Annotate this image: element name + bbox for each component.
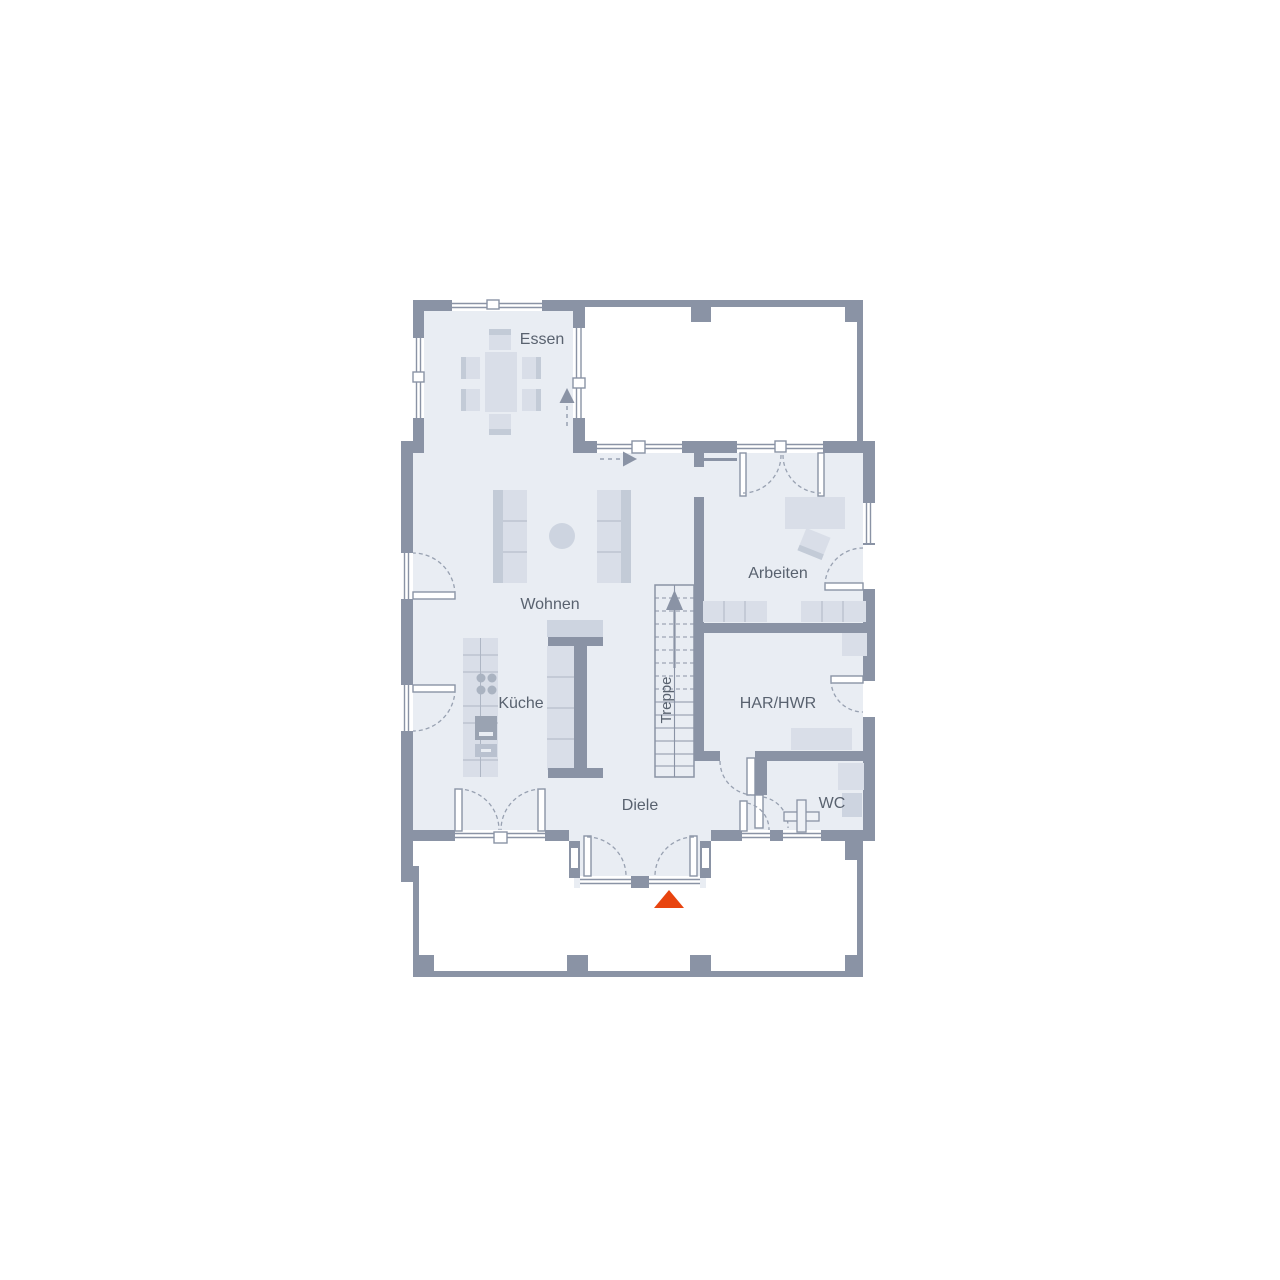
door-handle-mark — [632, 441, 645, 453]
counter-foot — [548, 768, 603, 778]
wall-wc-left — [755, 751, 767, 795]
har-cabinet — [842, 633, 867, 656]
door-leaf — [831, 676, 863, 683]
shower — [838, 763, 864, 790]
vestibule-sidelight — [702, 848, 709, 868]
window-essen-left — [413, 338, 424, 418]
room-label-wohnen: Wohnen — [520, 596, 579, 613]
window-essen-top — [452, 300, 542, 311]
door-leaf — [740, 801, 747, 831]
door-leaf — [747, 758, 755, 795]
oven-handle — [479, 732, 493, 736]
oven — [475, 716, 497, 740]
door-terrace-slider — [597, 441, 682, 453]
terrace-pillar-4 — [845, 955, 863, 977]
window-arbeiten-right — [863, 503, 875, 543]
counter-wall — [574, 646, 587, 770]
terrace-north-mid-pillar — [691, 300, 711, 322]
floor-plan-canvas: Essen Wohnen Küche Arbeiten HAR/HWR Diel… — [0, 0, 1280, 1280]
room-label-har-hwr: HAR/HWR — [740, 695, 816, 712]
wall-left-lower-stub — [401, 841, 413, 882]
room-label-diele: Diele — [622, 797, 659, 814]
coffee-table — [549, 523, 575, 549]
counter-edge — [548, 637, 603, 646]
chair-back — [489, 429, 511, 435]
wall-har-bottom — [755, 751, 866, 761]
drawer-handle — [481, 749, 491, 752]
entrance-marker-icon — [654, 890, 684, 908]
entrance-center-post — [631, 876, 649, 888]
window-tick — [413, 372, 424, 382]
terrace-pillar-1 — [413, 955, 434, 977]
door-leaf — [413, 592, 455, 599]
room-label-wc: WC — [819, 795, 846, 812]
door-handle-mark — [775, 441, 786, 452]
sideboard-left — [703, 601, 767, 622]
chair-back — [461, 389, 466, 411]
room-label-arbeiten: Arbeiten — [748, 565, 808, 582]
har-shelf — [791, 728, 852, 750]
chair-back — [536, 389, 541, 411]
door-leaf — [690, 836, 697, 876]
terrace-pillar-3 — [690, 955, 711, 977]
desk — [785, 497, 845, 529]
terrace-north-top-wall — [585, 300, 863, 307]
window-essen-right — [573, 328, 585, 418]
door-leaf — [455, 789, 462, 831]
terrace-south-bottom-wall — [413, 971, 863, 977]
wall-main-left — [401, 441, 413, 841]
floor-plan: Essen Wohnen Küche Arbeiten HAR/HWR Diel… — [0, 0, 1280, 1280]
room-label-essen: Essen — [520, 331, 564, 348]
terrace-north — [585, 300, 863, 441]
chair-back — [489, 329, 511, 335]
counter-top — [547, 620, 603, 637]
door-leaf — [818, 453, 824, 496]
room-label-kueche: Küche — [498, 695, 543, 712]
sideboard-right — [801, 601, 866, 622]
window-tick — [573, 378, 585, 388]
vestibule-sidelight — [571, 848, 578, 868]
door-leaf — [740, 453, 746, 496]
room-label-treppe: Treppe — [658, 677, 675, 724]
terrace-north-corner-pillar — [845, 300, 863, 322]
wall-arbeiten-har — [694, 623, 866, 633]
kitchen-island — [463, 638, 498, 777]
terrace-pillar-2 — [567, 955, 588, 977]
door-leaf — [413, 685, 455, 692]
door-leaf — [538, 789, 545, 831]
chair-back — [461, 357, 466, 379]
wall-har-bottom-stub — [694, 751, 720, 761]
chair-back — [536, 357, 541, 379]
door-leaf — [584, 836, 591, 876]
wall-sidelight-line — [704, 458, 737, 461]
terrace-pillar-5 — [845, 838, 863, 860]
wall-arbeiten-left-stub — [694, 441, 704, 467]
window-tick — [487, 300, 499, 309]
sofa-back — [493, 490, 503, 583]
sofa-back — [621, 490, 631, 583]
dining-table — [485, 352, 517, 412]
door-leaf — [825, 583, 863, 590]
door-handle-mark — [494, 832, 507, 843]
